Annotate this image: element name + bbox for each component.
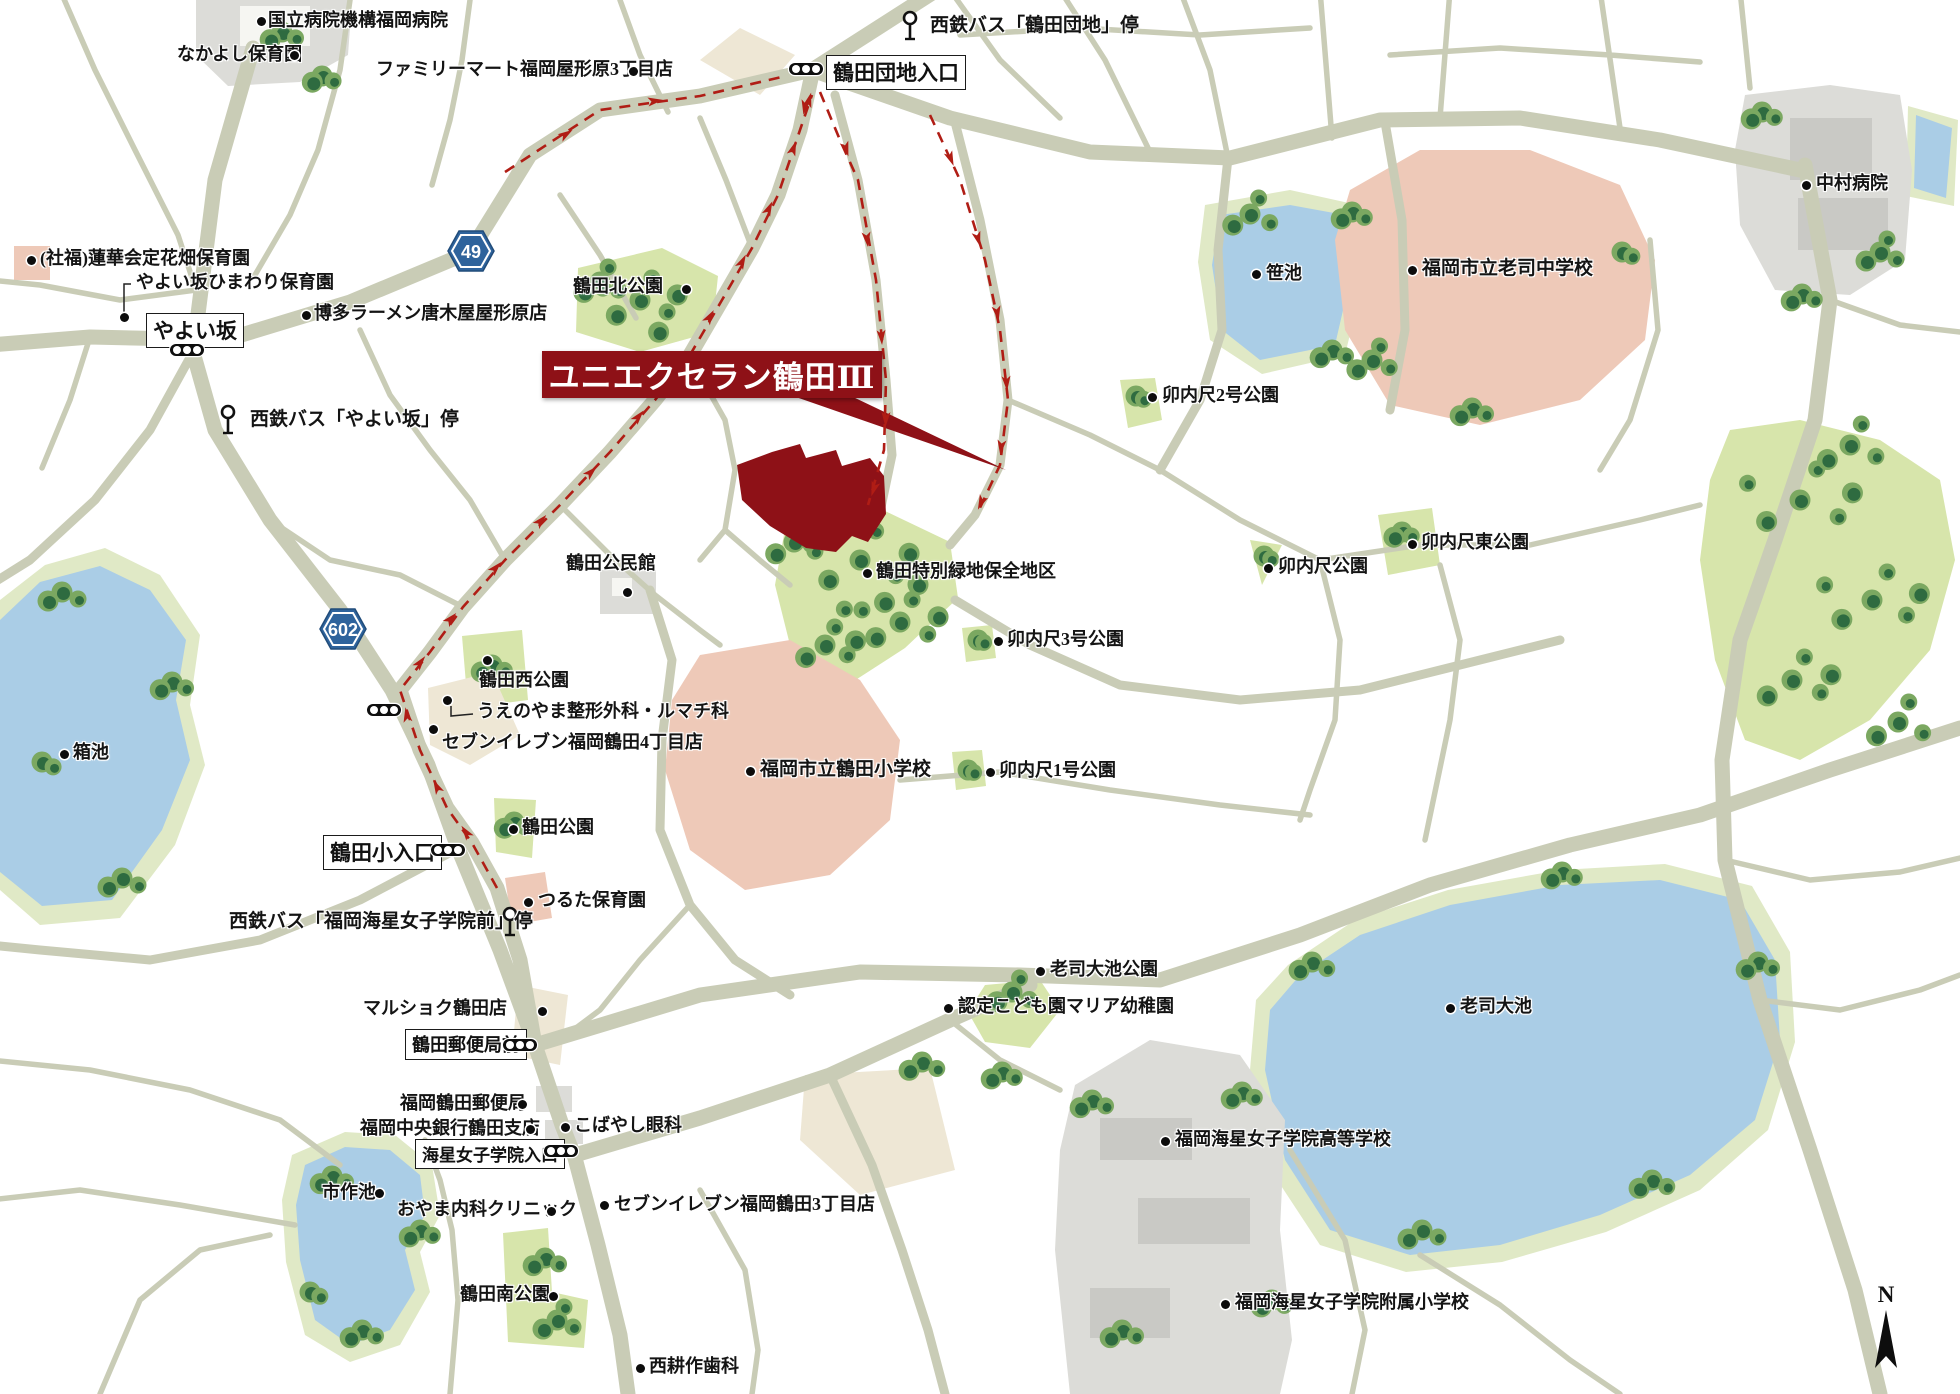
- place-label: 福岡市立鶴田小学校: [760, 760, 931, 780]
- place-label: 市作池: [322, 1183, 376, 1202]
- location-dot: [429, 725, 438, 734]
- traffic-signal-icon: [431, 844, 465, 856]
- location-dot: [257, 17, 266, 26]
- place-label: 箱池: [73, 743, 109, 762]
- location-dot: [1036, 967, 1045, 976]
- place-label: つるた保育園: [538, 891, 646, 910]
- location-dot: [623, 588, 632, 597]
- place-label: 福岡海星女子学院附属小学校: [1235, 1293, 1469, 1312]
- location-dot: [600, 1201, 609, 1210]
- place-label: 鶴田西公園: [479, 671, 569, 690]
- place-label: 老司大池公園: [1050, 960, 1158, 979]
- location-dot: [375, 1189, 384, 1198]
- place-label: 博多ラーメン唐木屋屋形原店: [314, 304, 547, 323]
- place-label: 福岡鶴田郵便局: [400, 1094, 526, 1113]
- traffic-signal-icon: [789, 63, 823, 75]
- place-label: 卯内尺1号公園: [999, 761, 1116, 780]
- signed-intersection-label: 海星女子学院入口: [415, 1139, 565, 1169]
- location-dot: [120, 313, 129, 322]
- place-label: 認定こども園マリア幼稚園: [958, 997, 1174, 1016]
- place-label: 福岡海星女子学院高等学校: [1175, 1130, 1391, 1149]
- bus-stop-icon: [219, 404, 237, 441]
- location-dot: [1408, 540, 1417, 549]
- traffic-signal-icon: [170, 344, 204, 356]
- location-dot: [483, 656, 492, 665]
- location-dot: [302, 311, 311, 320]
- location-dot: [746, 767, 755, 776]
- place-label: 西耕作歯科: [649, 1357, 739, 1376]
- location-dot: [509, 825, 518, 834]
- traffic-signal-icon: [544, 1145, 578, 1157]
- location-dot: [1161, 1137, 1170, 1146]
- location-dot: [944, 1004, 953, 1013]
- place-label: 国立病院機構福岡病院: [268, 11, 448, 30]
- place-label: やよい坂ひまわり保育園: [136, 273, 334, 292]
- place-label: マルショク鶴田店: [363, 999, 507, 1018]
- location-dot: [1802, 181, 1811, 190]
- route-shield-49: 49: [447, 230, 495, 272]
- location-dot: [986, 768, 995, 777]
- location-dot: [1264, 564, 1273, 573]
- location-dot: [1252, 270, 1261, 279]
- place-label: (社福)蓮華会定花畑保育園: [40, 249, 250, 268]
- place-label: 鶴田北公園: [573, 277, 663, 296]
- north-letter: N: [1878, 1282, 1895, 1307]
- place-label: 卯内尺公園: [1278, 557, 1368, 576]
- location-dot: [1221, 1300, 1230, 1309]
- place-label: うえのやま整形外科・ルマチ科: [477, 702, 729, 721]
- location-dot: [524, 898, 533, 907]
- place-label: 老司大池: [1460, 997, 1532, 1016]
- north-indicator: N: [1856, 1282, 1916, 1308]
- place-label: 卯内尺3号公園: [1007, 630, 1124, 649]
- traffic-signal-icon: [503, 1039, 537, 1051]
- property-banner: ユニエクセラン鶴田Ⅲ: [542, 351, 882, 398]
- location-dot: [561, 1123, 570, 1132]
- location-dot: [682, 285, 691, 294]
- location-dot: [538, 1007, 547, 1016]
- place-label: 鶴田公民館: [566, 554, 656, 573]
- location-dot: [60, 750, 69, 759]
- svg-text:602: 602: [328, 620, 358, 640]
- location-dot: [290, 51, 299, 60]
- label-overlay: ユニエクセラン鶴田Ⅲ N 国立病院機構福岡病院なかよし保育園ファミリーマート福岡…: [0, 0, 1960, 1394]
- place-label: なかよし保育園: [177, 45, 302, 64]
- place-label: 卯内尺東公園: [1421, 533, 1529, 552]
- place-label: 鶴田南公園: [460, 1285, 550, 1304]
- place-label: 中村病院: [1816, 174, 1888, 193]
- location-dot: [526, 1125, 535, 1134]
- place-label: セブンイレブン福岡鶴田3丁目店: [614, 1195, 875, 1214]
- bus-stop-label: 西鉄バス「福岡海星女子学院前」停: [229, 912, 533, 932]
- place-label: 鶴田特別緑地保全地区: [876, 562, 1056, 581]
- place-label: 卯内尺2号公園: [1162, 386, 1279, 405]
- location-dot: [518, 1100, 527, 1109]
- place-label: 福岡中央銀行鶴田支店: [360, 1119, 540, 1138]
- location-dot: [629, 67, 638, 76]
- north-arrow-icon: [1866, 1306, 1906, 1376]
- place-label: こばやし眼科: [574, 1116, 682, 1135]
- location-dot: [1446, 1004, 1455, 1013]
- traffic-signal-icon: [367, 704, 401, 716]
- location-dot: [27, 256, 36, 265]
- signed-intersection-label: 鶴田小入口: [323, 835, 442, 870]
- svg-text:49: 49: [461, 242, 481, 262]
- signed-intersection-label: やよい坂: [146, 313, 244, 348]
- location-dot: [1408, 266, 1417, 275]
- location-dot: [863, 569, 872, 578]
- property-banner-text: ユニエクセラン鶴田Ⅲ: [549, 352, 876, 397]
- location-dot: [994, 637, 1003, 646]
- location-dot: [443, 696, 452, 705]
- map-canvas: ユニエクセラン鶴田Ⅲ N 国立病院機構福岡病院なかよし保育園ファミリーマート福岡…: [0, 0, 1960, 1394]
- place-label: 鶴田公園: [522, 818, 594, 837]
- bus-stop-label: 西鉄バス「鶴田団地」停: [930, 16, 1139, 36]
- location-dot: [549, 1292, 558, 1301]
- place-label: 笹池: [1266, 264, 1302, 283]
- place-label: 福岡市立老司中学校: [1422, 259, 1593, 279]
- location-dot: [547, 1207, 556, 1216]
- signed-intersection-label: 鶴田団地入口: [826, 55, 966, 90]
- location-dot: [636, 1364, 645, 1373]
- bus-stop-label: 西鉄バス「やよい坂」停: [250, 410, 459, 430]
- place-label: セブンイレブン福岡鶴田4丁目店: [442, 733, 703, 752]
- location-dot: [1148, 393, 1157, 402]
- route-shield-602: 602: [319, 608, 367, 650]
- bus-stop-icon: [901, 10, 919, 47]
